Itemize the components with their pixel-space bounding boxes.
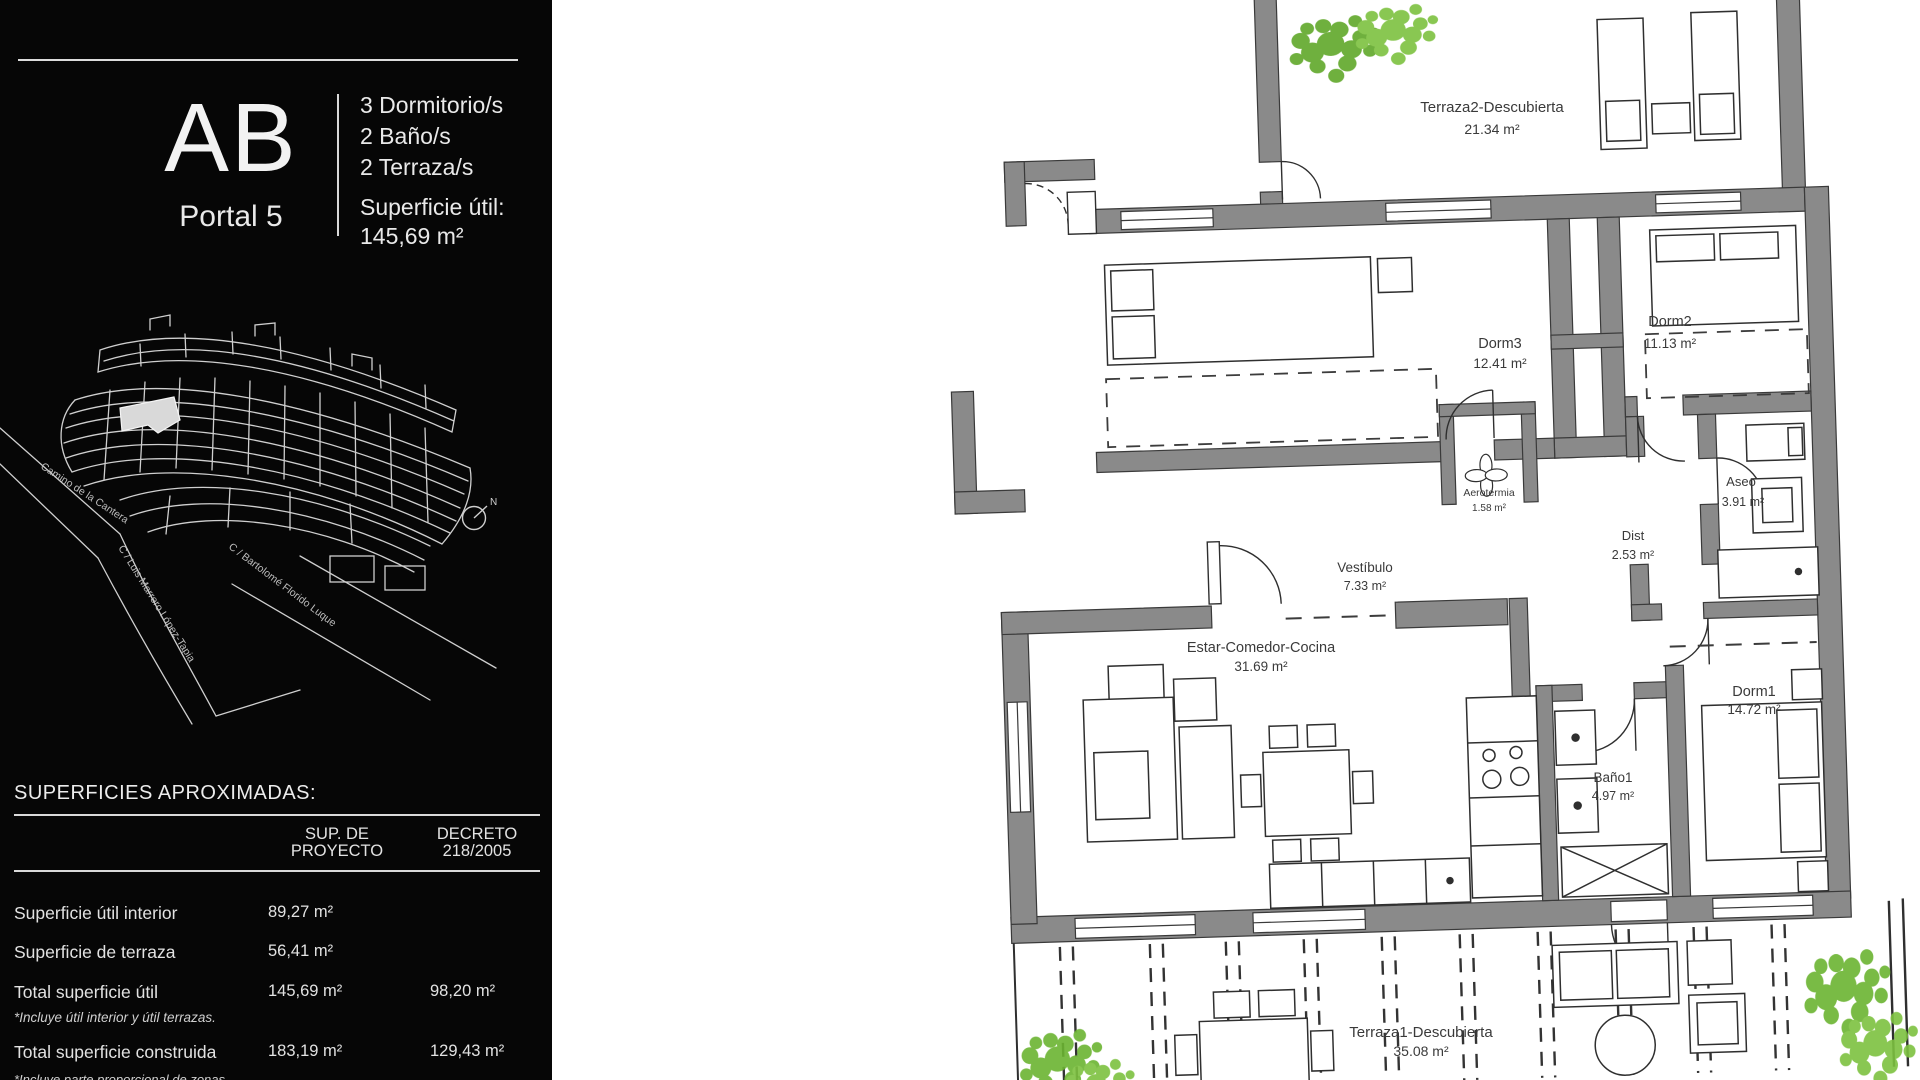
room-label-dorm1: Dorm1 [1732,684,1776,700]
room-area-dorm2: 11.13 m² [1644,336,1697,351]
room-area-aseo: 3.91 m² [1722,495,1764,509]
plan-geometry [939,0,1920,1080]
street-label-cantera: Camino de la Cantera [38,460,130,526]
unit-portal: Portal 5 [88,200,374,234]
floorplan-sheet: AB Portal 5 3 Dormitorio/s 2 Baño/s 2 Te… [0,0,1920,1080]
room-label-estar: Estar-Comedor-Cocina [1187,640,1336,656]
table-row: Total superficie útil 145,69 m² 98,20 m² [14,982,542,1003]
surfaces-title: SUPERFICIES APROXIMADAS: [14,782,316,805]
room-label-terraza1: Terraza1-Descubierta [1349,1024,1493,1041]
room-area-aerotermia: 1.58 m² [1472,503,1507,514]
room-label-dist: Dist [1622,528,1645,543]
table-footnote-cutoff: *Incluye parte proporcional de zonas com… [14,1072,542,1080]
col-sup-proyecto: SUP. DE PROYECTO [262,826,412,860]
spec-terraces: 2 Terraza/s [360,152,503,183]
info-sidebar: AB Portal 5 3 Dormitorio/s 2 Baño/s 2 Te… [0,0,552,1080]
room-label-aseo: Aseo [1726,474,1756,489]
street-label-florido: C / Bartolomé Florido Luque [226,541,338,630]
spec-divider [337,94,339,236]
room-label-terraza2: Terraza2-Descubierta [1420,99,1564,116]
unit-block: AB Portal 5 [88,88,374,234]
street-label-marrero: C / Luis Marrero López-Tapia [115,543,197,664]
room-area-terraza2: 21.34 m² [1464,121,1520,137]
spec-bedrooms: 3 Dormitorio/s [360,90,503,121]
room-area-dorm3: 12.41 m² [1473,356,1527,371]
room-area-bano1: 4.97 m² [1592,789,1634,803]
table-footnote: *Incluye útil interior y útil terrazas. [14,1010,216,1025]
table-row: Superficie de terraza 56,41 m² [14,942,542,963]
col-decreto: DECRETO 218/2005 [412,826,542,860]
room-label-bano1: Baño1 [1593,770,1632,785]
table-rule-mid [14,870,540,872]
floor-plan: Terraza2-Descubierta 21.34 m² Dorm3 12.4… [552,0,1920,1080]
north-label: N [490,497,497,508]
room-area-dorm1: 14.72 m² [1727,702,1781,717]
superficie-util: Superficie útil: 145,69 m² [360,193,504,251]
unit-code: AB [88,88,374,188]
room-area-terraza1: 35.08 m² [1393,1043,1449,1059]
room-label-aerotermia: Aerotermia [1463,487,1515,499]
room-label-dorm2: Dorm2 [1648,314,1692,330]
table-row: Total superficie construida 183,19 m² 12… [14,1042,542,1063]
top-divider [18,59,518,61]
unit-specs: 3 Dormitorio/s 2 Baño/s 2 Terraza/s [360,90,503,183]
table-row: Superficie útil interior 89,27 m² [14,903,542,924]
site-plan-illustration: Camino de la Cantera C / Luis Marrero Ló… [0,290,552,730]
room-area-vestibulo: 7.33 m² [1344,579,1386,593]
table-header: SUP. DE PROYECTO DECRETO 218/2005 [14,826,542,860]
room-area-estar: 31.69 m² [1234,659,1288,674]
spec-bathrooms: 2 Baño/s [360,121,503,152]
table-rule-top [14,814,540,816]
room-area-dist: 2.53 m² [1612,548,1654,562]
room-label-vestibulo: Vestíbulo [1337,560,1393,575]
room-label-dorm3: Dorm3 [1478,336,1522,352]
